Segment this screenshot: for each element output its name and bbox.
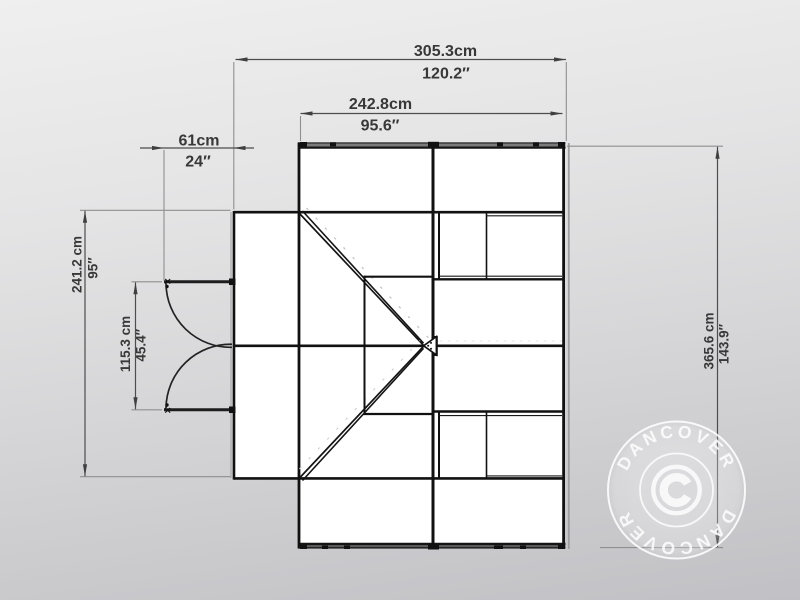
svg-text:115.3 cm: 115.3 cm [118, 316, 133, 372]
svg-text:95″: 95″ [86, 257, 101, 279]
svg-text:45.4″: 45.4″ [134, 328, 149, 361]
svg-text:241.2 cm: 241.2 cm [70, 236, 85, 293]
svg-text:143.9″: 143.9″ [717, 323, 732, 364]
svg-text:61cm: 61cm [179, 133, 220, 150]
svg-text:365.6 cm: 365.6 cm [702, 312, 717, 369]
svg-text:242.8cm: 242.8cm [349, 96, 412, 113]
svg-text:120.2″: 120.2″ [422, 65, 470, 82]
svg-text:24″: 24″ [185, 153, 211, 170]
svg-text:95.6″: 95.6″ [361, 117, 400, 134]
svg-text:305.3cm: 305.3cm [414, 43, 477, 60]
